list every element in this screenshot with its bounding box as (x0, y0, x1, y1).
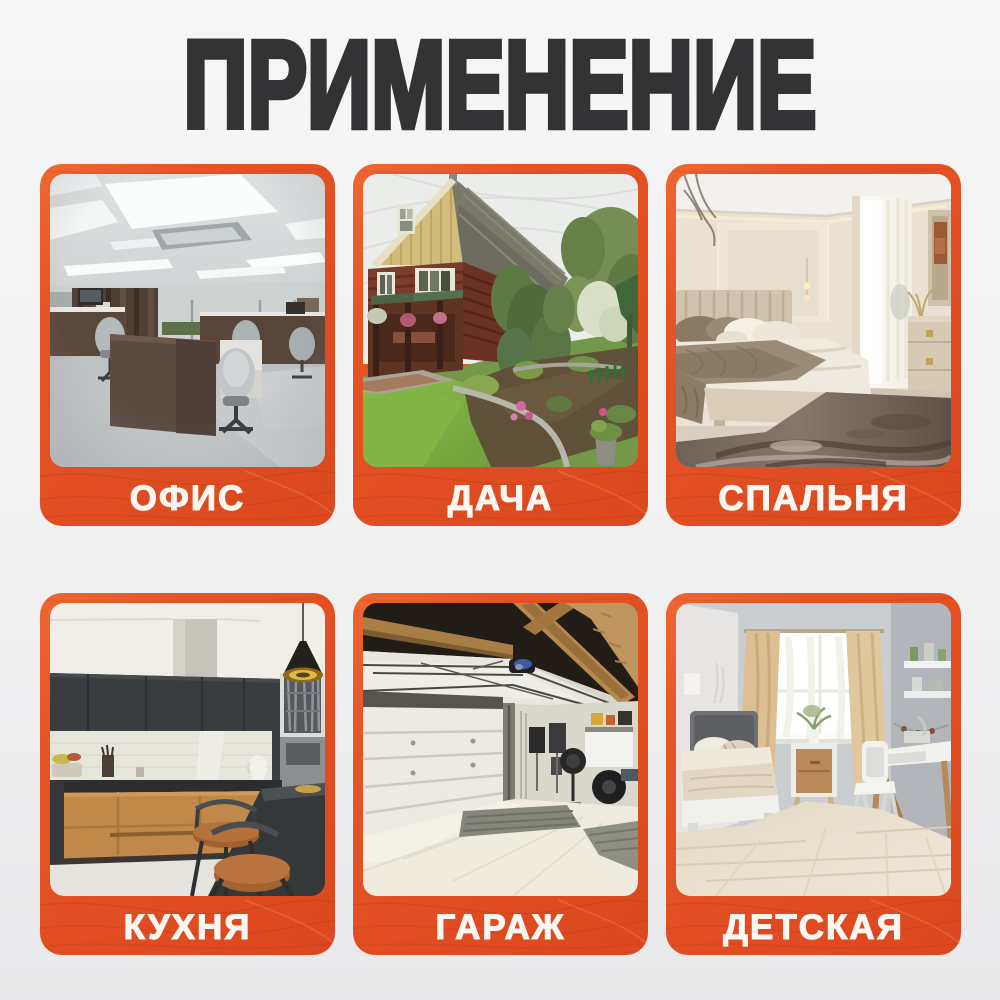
svg-text:ПРИМЕНЕНИЕ: ПРИМЕНЕНИЕ (184, 17, 817, 150)
